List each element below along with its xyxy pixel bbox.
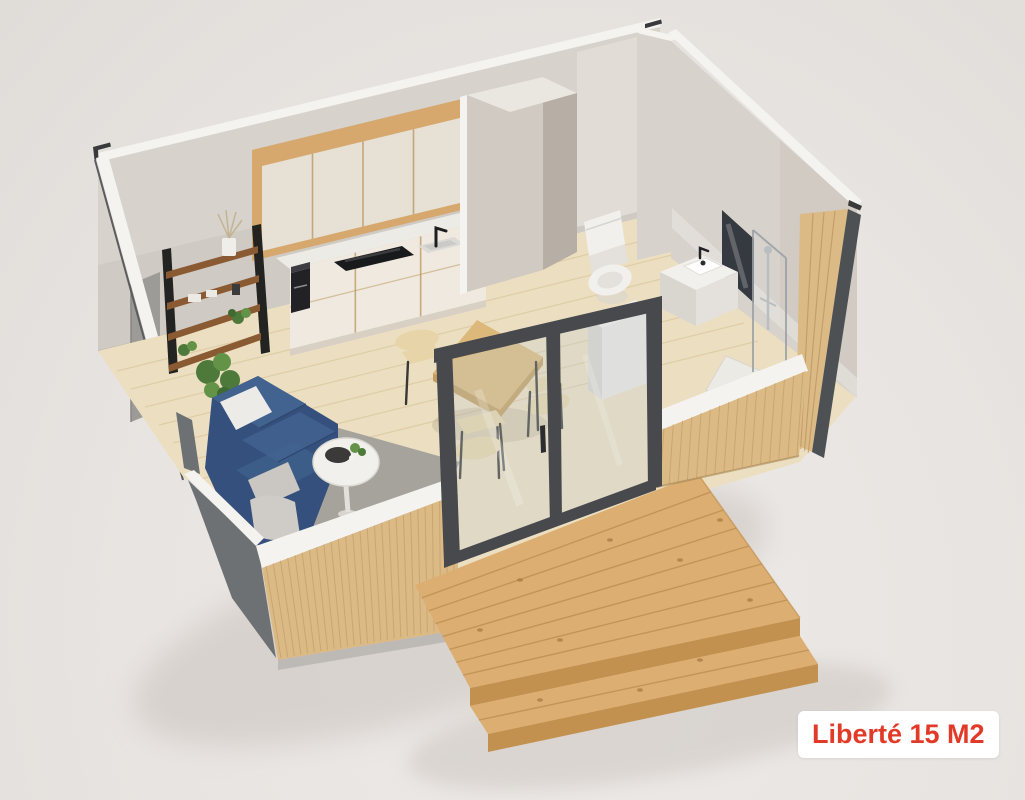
shelf-decor <box>188 294 201 302</box>
label-badge: Liberté 15 M2 <box>798 711 999 758</box>
table-tray <box>325 447 351 463</box>
shelf-decor <box>206 290 217 297</box>
door-handle <box>540 425 546 453</box>
shower-head <box>764 246 772 254</box>
badge-text: Liberté 15 M2 <box>812 719 985 749</box>
shelf-vase <box>232 284 240 295</box>
bathroom-partition <box>637 33 671 260</box>
tiny-house-render <box>0 0 1025 800</box>
coffee-machine <box>291 262 310 313</box>
render-page: { "badge": { "text": "Liberté 15 M2" }, … <box>0 0 1025 800</box>
